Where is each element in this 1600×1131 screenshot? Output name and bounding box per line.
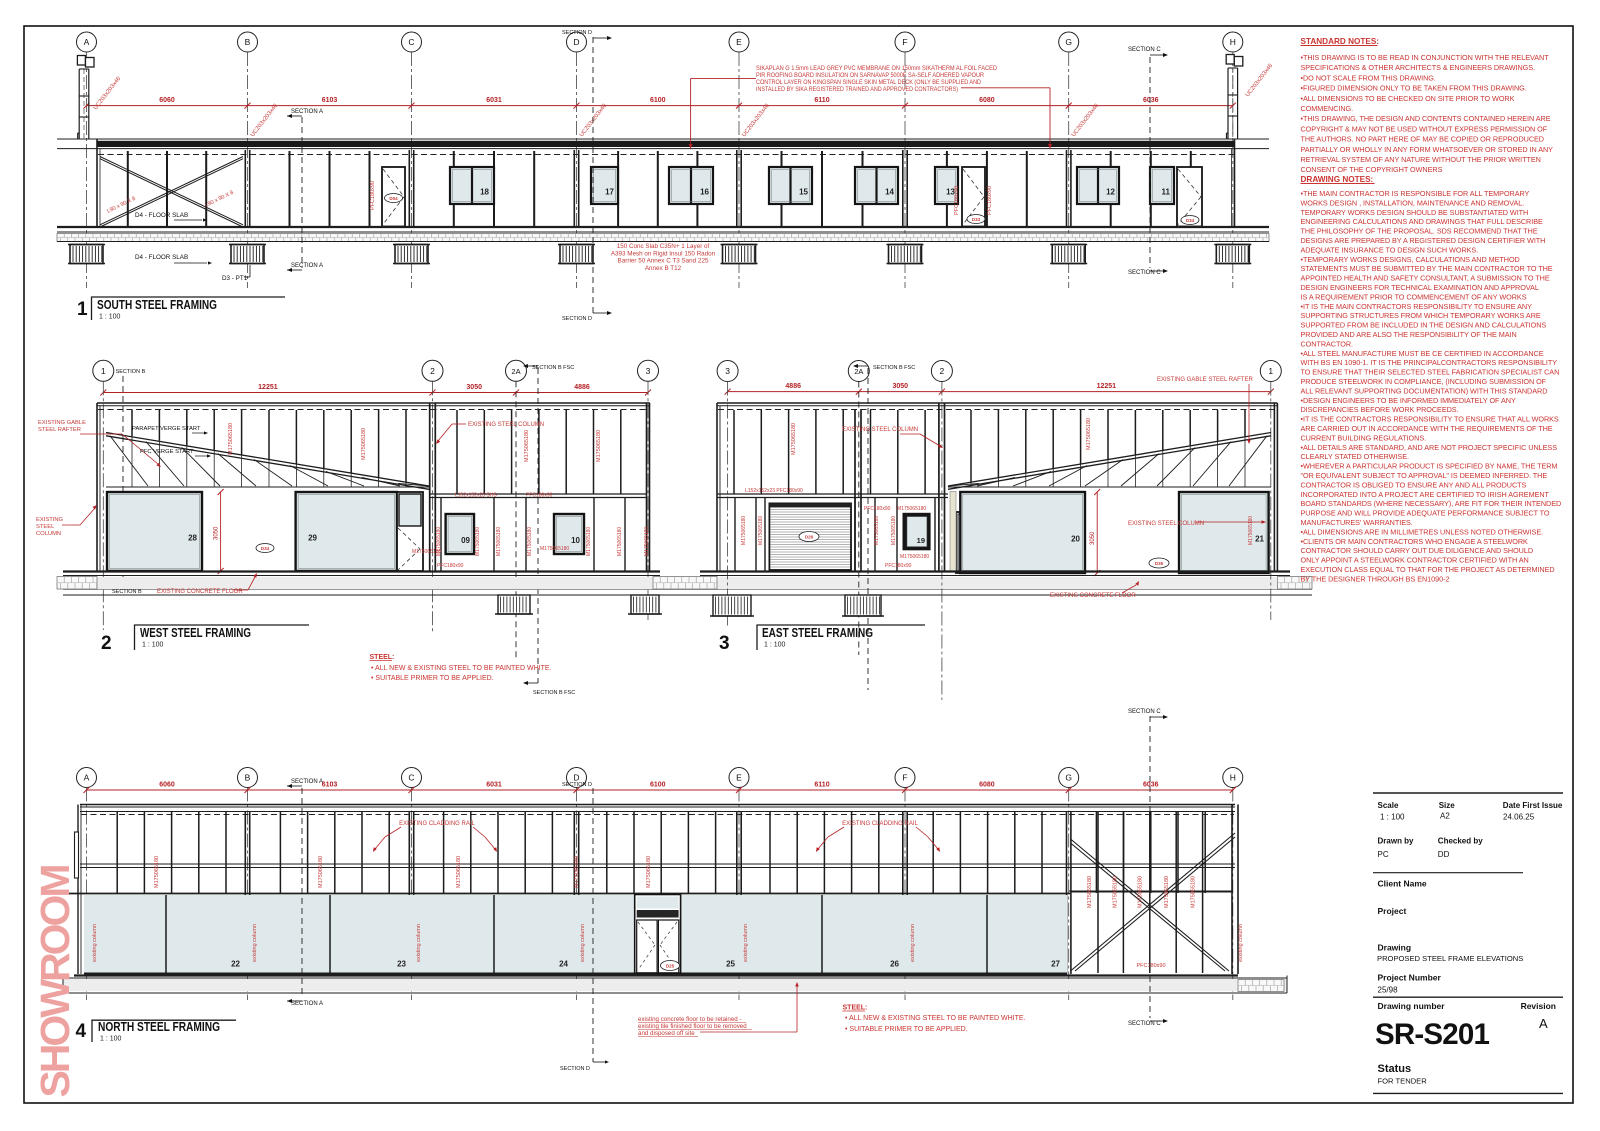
svg-text:M175065180: M175065180 bbox=[1164, 876, 1170, 908]
svg-text:PFC VERGE START: PFC VERGE START bbox=[140, 449, 194, 455]
svg-text:EXISTING STEEL COLUMN: EXISTING STEEL COLUMN bbox=[468, 422, 544, 428]
svg-text:A2: A2 bbox=[1440, 812, 1450, 821]
svg-text:M175065180: M175065180 bbox=[758, 516, 764, 545]
svg-text:SECTION B FSC: SECTION B FSC bbox=[873, 365, 915, 371]
svg-text:6080: 6080 bbox=[979, 782, 995, 789]
svg-text:M175065180: M175065180 bbox=[527, 527, 533, 556]
svg-text:CONTRACTOR IS OBLIGED TO ENSUR: CONTRACTOR IS OBLIGED TO ENSURE ANY AND … bbox=[1301, 480, 1527, 489]
svg-text:Barrier 50 Annex C T3 Sand 225: Barrier 50 Annex C T3 Sand 225 bbox=[618, 258, 709, 265]
svg-text:F: F bbox=[902, 773, 907, 783]
svg-text:existing tile finished floor t: existing tile finished floor to be remov… bbox=[638, 1023, 747, 1030]
svg-text:RETRIEVAL SYSTEM OF ANY NATURE: RETRIEVAL SYSTEM OF ANY NATURE WITHOUT T… bbox=[1301, 155, 1541, 164]
svg-text:H: H bbox=[1230, 37, 1236, 47]
svg-text:DRAWING NOTES:: DRAWING NOTES: bbox=[1301, 175, 1374, 184]
svg-text:CONTROL LAYER ON KINGSPAN SING: CONTROL LAYER ON KINGSPAN SINGLE SKIN ME… bbox=[756, 79, 981, 86]
svg-text:1: 1 bbox=[77, 299, 88, 320]
svg-text:14: 14 bbox=[885, 188, 894, 197]
svg-text:12: 12 bbox=[1106, 188, 1115, 197]
svg-text:M175065180: M175065180 bbox=[475, 527, 481, 556]
svg-text:•DO NOT SCALE FROM THIS DRAWIN: •DO NOT SCALE FROM THIS DRAWING. bbox=[1301, 73, 1436, 82]
svg-text:INCORPORATED INTO A PROJECT AR: INCORPORATED INTO A PROJECT ARE CERTIFIE… bbox=[1301, 490, 1550, 499]
svg-text:SECTION D: SECTION D bbox=[562, 782, 592, 788]
svg-text:M175065180: M175065180 bbox=[1191, 876, 1197, 908]
svg-text:23: 23 bbox=[397, 960, 406, 969]
svg-text:6103: 6103 bbox=[322, 782, 338, 789]
svg-text:existing concrete floor to be: existing concrete floor to be retained - bbox=[638, 1016, 742, 1023]
svg-text:2: 2 bbox=[101, 633, 112, 654]
svg-text:M175065180: M175065180 bbox=[644, 527, 650, 556]
svg-text:Drawn by: Drawn by bbox=[1378, 837, 1415, 846]
svg-text:SPECIFICATIONS & OTHER ARCHITE: SPECIFICATIONS & OTHER ARCHITECTS & ENGI… bbox=[1301, 63, 1536, 72]
svg-text:150 Conc Slab C35N+ 1 Layer of: 150 Conc Slab C35N+ 1 Layer of bbox=[617, 243, 710, 250]
svg-text:SECTION D: SECTION D bbox=[560, 1066, 590, 1072]
svg-text:M175065180: M175065180 bbox=[456, 856, 462, 888]
svg-text:DESIGNS ARE PREPARED BY A REG: DESIGNS ARE PREPARED BY A REGISTERED DES… bbox=[1301, 236, 1546, 245]
svg-text:M175065180: M175065180 bbox=[791, 423, 797, 455]
svg-text:SECTION C: SECTION C bbox=[1128, 1021, 1161, 1027]
svg-text:6036: 6036 bbox=[1143, 782, 1159, 789]
svg-text:D: D bbox=[573, 37, 579, 47]
svg-text:C: C bbox=[408, 773, 414, 783]
svg-text:3050: 3050 bbox=[466, 384, 482, 391]
svg-text:24.06.25: 24.06.25 bbox=[1503, 813, 1535, 822]
svg-text:17: 17 bbox=[605, 188, 614, 197]
svg-text:existing column: existing column bbox=[580, 924, 586, 962]
svg-text:DD: DD bbox=[1438, 850, 1450, 859]
svg-text:A: A bbox=[84, 773, 90, 783]
svg-text:•ALL DIMENSIONS ARE IN MILLIME: •ALL DIMENSIONS ARE IN MILLIMETRES UNLES… bbox=[1301, 527, 1544, 536]
svg-text:E: E bbox=[736, 37, 742, 47]
svg-text:THE AUTHORS. NO PART HERE OF: THE AUTHORS. NO PART HERE OF MAY BE COPI… bbox=[1301, 135, 1544, 144]
svg-text:existing column: existing column bbox=[743, 924, 749, 962]
svg-text:STEEL: STEEL bbox=[36, 524, 55, 530]
svg-text:D: D bbox=[573, 773, 579, 783]
svg-text:SR-S201: SR-S201 bbox=[1375, 1018, 1489, 1051]
svg-text:M175065180: M175065180 bbox=[617, 527, 623, 556]
svg-text:D04: D04 bbox=[389, 196, 398, 201]
svg-text:ONLY APPOINT A STEELWORK CONTR: ONLY APPOINT A STEELWORK CONTRACTOR CERT… bbox=[1301, 556, 1529, 565]
svg-text:M175065180: M175065180 bbox=[1138, 876, 1144, 908]
svg-text:•IT IS THE MAIN CONTRACTORS RE: •IT IS THE MAIN CONTRACTORS RESPONSIBILI… bbox=[1301, 302, 1533, 311]
svg-text:EXECUTION CLASS EQUAL TO THAT: EXECUTION CLASS EQUAL TO THAT FOR THE PR… bbox=[1301, 565, 1555, 574]
svg-text:M175065180: M175065180 bbox=[596, 430, 602, 462]
svg-text:PFC180x90: PFC180x90 bbox=[987, 186, 993, 215]
svg-text:Date First Issue: Date First Issue bbox=[1503, 801, 1563, 810]
svg-text:•ALL DIMENSIONS TO BE CHECKED: •ALL DIMENSIONS TO BE CHECKED ON SITE PR… bbox=[1301, 94, 1515, 103]
svg-text:Revision: Revision bbox=[1521, 1001, 1556, 1011]
svg-text:•ALL STEEL MANUFACTURE MUST BE: •ALL STEEL MANUFACTURE MUST BE CE CERTIF… bbox=[1301, 349, 1544, 358]
svg-text:6036: 6036 bbox=[1143, 97, 1159, 104]
svg-text:21: 21 bbox=[1255, 535, 1264, 544]
svg-text:EXISTING STEEL COLUMN: EXISTING STEEL COLUMN bbox=[842, 427, 918, 433]
svg-text:TO ENSURE THAT THEIR SELECTED: TO ENSURE THAT THEIR SELECTED STEEL FABR… bbox=[1301, 368, 1560, 377]
svg-text:ENGINEERING CALCULATIONS AND: ENGINEERING CALCULATIONS AND DRAWINGS TH… bbox=[1301, 217, 1543, 226]
svg-text:CONTRACTOR.: CONTRACTOR. bbox=[1301, 339, 1354, 348]
svg-text:NORTH STEEL FRAMING: NORTH STEEL FRAMING bbox=[98, 1020, 220, 1034]
svg-text:M175065180: M175065180 bbox=[1086, 418, 1092, 450]
svg-text:WEST STEEL FRAMING: WEST STEEL FRAMING bbox=[140, 626, 251, 640]
svg-text:"OR EQUIVALENT SUBJECT TO APPR: "OR EQUIVALENT SUBJECT TO APPROVAL" IS D… bbox=[1301, 471, 1548, 480]
svg-text:•FIGURED DIMENSION ONLY TO BE: •FIGURED DIMENSION ONLY TO BE TAKEN FROM… bbox=[1301, 84, 1527, 93]
svg-text:4886: 4886 bbox=[574, 384, 590, 391]
svg-text:L152x152x23 PFC180x90: L152x152x23 PFC180x90 bbox=[745, 488, 803, 494]
svg-text:M175065180: M175065180 bbox=[891, 516, 897, 545]
svg-text:CONSENT OF THE COPYRIGHT OWNER: CONSENT OF THE COPYRIGHT OWNERS bbox=[1301, 165, 1443, 174]
svg-text:PFC180x90: PFC180x90 bbox=[526, 492, 553, 498]
svg-text:SECTION A: SECTION A bbox=[291, 779, 323, 785]
svg-text:M175065180: M175065180 bbox=[574, 856, 580, 888]
svg-text:STANDARD NOTES:: STANDARD NOTES: bbox=[1301, 37, 1380, 46]
svg-text:Project: Project bbox=[1378, 906, 1407, 916]
svg-text:EXISTING: EXISTING bbox=[36, 517, 64, 523]
svg-text:M175065180: M175065180 bbox=[900, 554, 929, 560]
svg-text:SECTION A: SECTION A bbox=[291, 1001, 323, 1007]
svg-text:6100: 6100 bbox=[650, 782, 666, 789]
svg-text:24: 24 bbox=[559, 960, 568, 969]
svg-text:EXISTING STEEL COLUMN: EXISTING STEEL COLUMN bbox=[1128, 521, 1204, 527]
svg-text:• SUITABLE PRIMER TO BE APPLI: • SUITABLE PRIMER TO BE APPLIED. bbox=[845, 1026, 968, 1033]
svg-text:WORKS DESIGN , INSTALLATION, M: WORKS DESIGN , INSTALLATION, MAINTENANCE… bbox=[1301, 198, 1525, 207]
svg-text:1 : 100: 1 : 100 bbox=[100, 1036, 122, 1043]
svg-text:6103: 6103 bbox=[322, 97, 338, 104]
svg-text:MANUFACTURES' WARRANTIES.: MANUFACTURES' WARRANTIES. bbox=[1301, 518, 1413, 527]
svg-text:D34: D34 bbox=[1186, 218, 1195, 223]
svg-text:SHOWROOM: SHOWROOM bbox=[32, 866, 78, 1098]
svg-text:D3 - PT1: D3 - PT1 bbox=[222, 275, 248, 282]
svg-text:APPOINTED HEALTH AND SAFETY CO: APPOINTED HEALTH AND SAFETY CONSULTANT, … bbox=[1301, 274, 1550, 283]
svg-text:25: 25 bbox=[726, 960, 735, 969]
svg-text:DISCREPANCIES BEFORE WORK PROC: DISCREPANCIES BEFORE WORK PROCEEDS. bbox=[1301, 405, 1459, 414]
svg-text:CONTRACTOR SHOULD CARRY OUT DU: CONTRACTOR SHOULD CARRY OUT DUE DILIGENC… bbox=[1301, 546, 1534, 555]
svg-text:D34: D34 bbox=[261, 546, 270, 551]
svg-text:SECTION B: SECTION B bbox=[116, 369, 146, 375]
svg-text:existing column: existing column bbox=[92, 924, 98, 962]
svg-text:INSTALLED BY SIKA REGISTERED T: INSTALLED BY SIKA REGISTERED TRAINED AND… bbox=[756, 86, 958, 93]
svg-text:6031: 6031 bbox=[486, 97, 502, 104]
svg-text:SIKAPLAN G 1.5mm LEAD GREY PVC: SIKAPLAN G 1.5mm LEAD GREY PVC MEMBRANE … bbox=[756, 65, 997, 72]
svg-text:2A: 2A bbox=[511, 367, 520, 376]
svg-text:Drawing number: Drawing number bbox=[1378, 1001, 1446, 1011]
svg-text:10: 10 bbox=[571, 536, 580, 545]
svg-text:SUPPORTING STRUCTURES FROM WHI: SUPPORTING STRUCTURES FROM WHICH TEMPORA… bbox=[1301, 311, 1541, 320]
svg-text:A: A bbox=[1539, 1016, 1548, 1031]
svg-text:2: 2 bbox=[430, 366, 435, 376]
svg-text:BOARD STANDARDS (WHERE NECESSA: BOARD STANDARDS (WHERE NECESSARY), ARE F… bbox=[1301, 499, 1562, 508]
svg-text:• ALL NEW & EXISTING STEEL T: • ALL NEW & EXISTING STEEL TO BE PAINTED… bbox=[845, 1015, 1026, 1022]
svg-text:M175065180: M175065180 bbox=[741, 516, 747, 545]
svg-text:STATEMENTS MUST BE SUBMITTED B: STATEMENTS MUST BE SUBMITTED BY THE MAIN… bbox=[1301, 264, 1553, 273]
svg-text:PRODUCE STEELWORK IN COMPLIANC: PRODUCE STEELWORK IN COMPLIANCE, (INCLUD… bbox=[1301, 377, 1547, 386]
svg-text:1 : 100: 1 : 100 bbox=[142, 642, 164, 649]
svg-text:A: A bbox=[84, 37, 90, 47]
svg-text:SECTION B FSC: SECTION B FSC bbox=[533, 690, 575, 696]
svg-text:THE PHILOSOPHY OF THE PROPOSAL: THE PHILOSOPHY OF THE PROPOSAL. SDS RECO… bbox=[1301, 227, 1538, 236]
svg-text:6100: 6100 bbox=[650, 97, 666, 104]
svg-text:PFC180x90: PFC180x90 bbox=[370, 181, 376, 210]
svg-text:Drawing: Drawing bbox=[1378, 943, 1412, 953]
svg-text:COLUMN: COLUMN bbox=[36, 531, 61, 537]
svg-text:BY THE DESIGNER THROUGH BS EN1: BY THE DESIGNER THROUGH BS EN1090-2 bbox=[1301, 574, 1450, 583]
svg-text:EXISTING CONCRETE FLOOR: EXISTING CONCRETE FLOOR bbox=[157, 589, 243, 595]
svg-text:6031: 6031 bbox=[486, 782, 502, 789]
svg-text:M175065180: M175065180 bbox=[318, 856, 324, 888]
svg-text:EXISTING CONCRETE FLOOR: EXISTING CONCRETE FLOOR bbox=[1050, 593, 1136, 599]
svg-text:Status: Status bbox=[1378, 1063, 1412, 1075]
svg-text:6060: 6060 bbox=[159, 782, 175, 789]
svg-text:M175065180: M175065180 bbox=[361, 428, 367, 460]
svg-text:D4 - FLOOR SLAB: D4 - FLOOR SLAB bbox=[135, 254, 188, 261]
svg-text:DESIGN ENGINEERS FOR TECHNIC: DESIGN ENGINEERS FOR TECHNICAL EXAMINATI… bbox=[1301, 283, 1539, 292]
svg-text:29: 29 bbox=[308, 534, 317, 543]
svg-text:SECTION B: SECTION B bbox=[112, 589, 142, 595]
svg-text:PC: PC bbox=[1378, 850, 1389, 859]
svg-text:2A: 2A bbox=[854, 367, 863, 376]
svg-text:PFC180x90: PFC180x90 bbox=[1136, 963, 1165, 969]
svg-text:•DESIGN ENGINEERS TO BE INFORM: •DESIGN ENGINEERS TO BE INFORMED IMMEDIA… bbox=[1301, 396, 1516, 405]
svg-text:F: F bbox=[902, 37, 907, 47]
svg-text:•ALL DETAILS ARE STANDARD, AND: •ALL DETAILS ARE STANDARD, AND ARE NOT P… bbox=[1301, 443, 1558, 452]
svg-text:2: 2 bbox=[940, 366, 945, 376]
svg-text:•CLIENTS OR MAIN CONTRACTORS W: •CLIENTS OR MAIN CONTRACTORS WHO ENGAGE … bbox=[1301, 537, 1529, 546]
svg-text:Checked by: Checked by bbox=[1438, 837, 1483, 846]
svg-text:M175065180: M175065180 bbox=[412, 549, 441, 555]
svg-text:COMMENCING.: COMMENCING. bbox=[1301, 104, 1354, 113]
svg-text:•THIS DRAWING, THE DESIGN AND: •THIS DRAWING, THE DESIGN AND CONTENTS C… bbox=[1301, 114, 1551, 123]
svg-text:SECTION C: SECTION C bbox=[1128, 47, 1161, 53]
svg-text:STEEL RAFTER: STEEL RAFTER bbox=[38, 427, 81, 433]
svg-text:E: E bbox=[736, 773, 742, 783]
svg-text:G: G bbox=[1065, 773, 1072, 783]
svg-text:EXISTING GABLE STEEL RAFTER: EXISTING GABLE STEEL RAFTER bbox=[1157, 377, 1253, 383]
svg-text:L152x152x23 SHS: L152x152x23 SHS bbox=[455, 492, 497, 498]
svg-text:D33: D33 bbox=[972, 217, 981, 222]
svg-text:25/98: 25/98 bbox=[1378, 986, 1399, 995]
svg-text:19: 19 bbox=[917, 536, 925, 545]
svg-text:•WHEREVER A PARTICULAR PRODUCT: •WHEREVER A PARTICULAR PRODUCT IS SPECIF… bbox=[1301, 462, 1558, 471]
svg-text:• SUITABLE PRIMER TO BE APPLI: • SUITABLE PRIMER TO BE APPLIED. bbox=[371, 675, 494, 682]
svg-text:D25: D25 bbox=[666, 964, 675, 969]
svg-text:existing column: existing column bbox=[252, 924, 258, 962]
svg-text:ARE CARRIED OUT IN ACCORDANCE: ARE CARRIED OUT IN ACCORDANCE WITH THE R… bbox=[1301, 424, 1553, 433]
svg-text:28: 28 bbox=[188, 534, 197, 543]
svg-text:3: 3 bbox=[719, 633, 730, 654]
svg-text:IS A REQUIREMENT PRIOR TO COMM: IS A REQUIREMENT PRIOR TO COMMENCEMENT O… bbox=[1301, 292, 1527, 301]
svg-text:12251: 12251 bbox=[1097, 383, 1117, 390]
svg-text:existing column: existing column bbox=[910, 924, 916, 962]
svg-text:M175065180: M175065180 bbox=[496, 527, 502, 556]
svg-text:SECTION A: SECTION A bbox=[291, 263, 323, 269]
svg-text:M175065180: M175065180 bbox=[1112, 876, 1118, 908]
svg-text:COPYRIGHT & MAY NOT BE USED WI: COPYRIGHT & MAY NOT BE USED WITHOUT EXPR… bbox=[1301, 124, 1548, 133]
svg-text:EXISTING CLADDING RAIL: EXISTING CLADDING RAIL bbox=[399, 821, 475, 827]
svg-text:PFC180x90: PFC180x90 bbox=[864, 506, 891, 512]
svg-text:ALL RELEVANT SUPPORTING DOCUME: ALL RELEVANT SUPPORTING DOCUMENTATION) W… bbox=[1301, 386, 1548, 395]
svg-text:PFC180x90: PFC180x90 bbox=[885, 563, 912, 569]
svg-text:M175065180: M175065180 bbox=[874, 516, 880, 545]
svg-text:FOR TENDER: FOR TENDER bbox=[1378, 1077, 1428, 1086]
svg-text:3050: 3050 bbox=[893, 383, 909, 390]
svg-text:•IT IS THE CONTRACTORS RESPONS: •IT IS THE CONTRACTORS RESPONSIBILITY TO… bbox=[1301, 415, 1559, 424]
svg-text:M175065180: M175065180 bbox=[1248, 516, 1254, 545]
svg-text:12251: 12251 bbox=[258, 384, 278, 391]
svg-text:PURPOSE AND WILL PROVIDE ADEQU: PURPOSE AND WILL PROVIDE ADEQUATE PERFOR… bbox=[1301, 509, 1550, 518]
svg-text:M175065180: M175065180 bbox=[897, 506, 926, 512]
svg-text:WITH BS EN 1090-1. IT IS THE: WITH BS EN 1090-1. IT IS THE PRINCIPALCO… bbox=[1301, 358, 1558, 367]
svg-text:SECTION C: SECTION C bbox=[1128, 709, 1161, 715]
svg-text:3: 3 bbox=[646, 366, 651, 376]
svg-text:B: B bbox=[245, 37, 251, 47]
svg-text:15: 15 bbox=[799, 188, 808, 197]
svg-text:3: 3 bbox=[725, 366, 730, 376]
svg-text:STEEL:: STEEL: bbox=[843, 1005, 868, 1012]
svg-text:PARAPET VERGE START: PARAPET VERGE START bbox=[132, 426, 201, 432]
svg-text:M175065180: M175065180 bbox=[154, 856, 160, 888]
svg-text:H: H bbox=[1230, 773, 1236, 783]
svg-text:existing column: existing column bbox=[416, 924, 422, 962]
svg-text:SOUTH STEEL FRAMING: SOUTH STEEL FRAMING bbox=[97, 298, 217, 312]
svg-text:6110: 6110 bbox=[814, 782, 829, 789]
svg-text:27: 27 bbox=[1051, 960, 1060, 969]
svg-text:16: 16 bbox=[700, 188, 709, 197]
svg-text:SECTION D: SECTION D bbox=[562, 316, 592, 322]
svg-text:Project Number: Project Number bbox=[1378, 973, 1442, 983]
svg-text:B: B bbox=[245, 773, 251, 783]
svg-text:M175065180: M175065180 bbox=[524, 430, 530, 462]
svg-text:6080: 6080 bbox=[979, 97, 995, 104]
svg-text:6060: 6060 bbox=[159, 97, 175, 104]
svg-text:M175065180: M175065180 bbox=[228, 423, 234, 455]
svg-text:SECTION B FSC: SECTION B FSC bbox=[532, 365, 574, 371]
svg-text:20: 20 bbox=[1071, 535, 1080, 544]
svg-text:1 : 100: 1 : 100 bbox=[764, 642, 786, 649]
svg-text:Annex B T12: Annex B T12 bbox=[645, 265, 682, 272]
svg-text:M175065180: M175065180 bbox=[646, 856, 652, 888]
svg-text:D26: D26 bbox=[805, 535, 814, 540]
svg-text:22: 22 bbox=[231, 960, 240, 969]
svg-text:11: 11 bbox=[1162, 188, 1171, 197]
svg-text:1: 1 bbox=[101, 366, 106, 376]
svg-text:ADEQUATE INSURANCE TO DESIGN: ADEQUATE INSURANCE TO DESIGN SUCH WORKS. bbox=[1301, 245, 1479, 254]
svg-text:•THIS DRAWING IS TO BE READ IN: •THIS DRAWING IS TO BE READ IN CONJUNCTI… bbox=[1301, 53, 1550, 62]
svg-text:1: 1 bbox=[1268, 366, 1273, 376]
svg-text:STEEL:: STEEL: bbox=[370, 654, 395, 661]
svg-text:SECTION D: SECTION D bbox=[562, 30, 592, 36]
svg-text:and disposed off site: and disposed off site bbox=[638, 1030, 695, 1037]
svg-text:G: G bbox=[1065, 37, 1072, 47]
svg-text:M175065180: M175065180 bbox=[1087, 876, 1093, 908]
svg-text:1 : 100: 1 : 100 bbox=[99, 314, 121, 321]
svg-text:M175065180: M175065180 bbox=[540, 546, 569, 552]
svg-text:3050: 3050 bbox=[214, 526, 220, 540]
svg-text:• ALL NEW & EXISTING STEEL T: • ALL NEW & EXISTING STEEL TO BE PAINTED… bbox=[371, 665, 552, 672]
svg-text:EXISTING CLADDING RAIL: EXISTING CLADDING RAIL bbox=[842, 821, 918, 827]
svg-text:PROVIDED AND ARE ALSO THE RES: PROVIDED AND ARE ALSO THE RESPONSIBILITY… bbox=[1301, 330, 1517, 339]
svg-text:Scale: Scale bbox=[1378, 801, 1399, 810]
svg-text:SECTION A: SECTION A bbox=[291, 109, 323, 115]
svg-text:PROPOSED STEEL FRAME ELEVATION: PROPOSED STEEL FRAME ELEVATIONS bbox=[1377, 954, 1523, 963]
svg-text:PFC180x90: PFC180x90 bbox=[954, 186, 960, 215]
svg-text:A393 Mesh on Rigid Insul 150: A393 Mesh on Rigid Insul 150 Radon bbox=[611, 250, 716, 257]
svg-text:PFC180x90: PFC180x90 bbox=[437, 563, 464, 569]
svg-text:4886: 4886 bbox=[785, 383, 801, 390]
svg-text:Client Name: Client Name bbox=[1378, 879, 1427, 889]
svg-text:PIR ROOFING BOARD INSULATION O: PIR ROOFING BOARD INSULATION ON SARNAVAP… bbox=[756, 72, 984, 79]
svg-text:EAST STEEL FRAMING: EAST STEEL FRAMING bbox=[762, 626, 873, 640]
svg-text:1 : 100: 1 : 100 bbox=[1380, 813, 1405, 822]
svg-text:•THE MAIN CONTRACTOR IS RESPON: •THE MAIN CONTRACTOR IS RESPONSIBLE FOR … bbox=[1301, 189, 1530, 198]
svg-text:Size: Size bbox=[1439, 801, 1456, 810]
svg-text:existing column: existing column bbox=[1238, 924, 1244, 962]
svg-text:D35: D35 bbox=[1155, 561, 1164, 566]
svg-text:3050: 3050 bbox=[1090, 531, 1096, 545]
svg-text:C: C bbox=[408, 37, 414, 47]
svg-text:18: 18 bbox=[480, 188, 489, 197]
svg-text:D4 - FLOOR SLAB: D4 - FLOOR SLAB bbox=[135, 212, 188, 219]
svg-text:26: 26 bbox=[890, 960, 899, 969]
svg-text:PARTIALLY OR WHOLLY IN ANY FOR: PARTIALLY OR WHOLLY IN ANY FORM WHATSOEV… bbox=[1301, 145, 1554, 154]
svg-text:CURRENT BUILDING REGULATIONS.: CURRENT BUILDING REGULATIONS. bbox=[1301, 433, 1427, 442]
svg-text:EXISTING GABLE: EXISTING GABLE bbox=[38, 420, 86, 426]
svg-text:•TEMPORARY WORKS DESIGNS, CALC: •TEMPORARY WORKS DESIGNS, CALCULATIONS A… bbox=[1301, 255, 1520, 264]
svg-text:CLEARLY STATED OTHERWISE.: CLEARLY STATED OTHERWISE. bbox=[1301, 452, 1409, 461]
svg-text:SUPPORTED FROM BE INCLUDED IN: SUPPORTED FROM BE INCLUDED IN THE DESIGN… bbox=[1301, 321, 1547, 330]
svg-text:6110: 6110 bbox=[814, 97, 829, 104]
svg-text:09: 09 bbox=[461, 536, 470, 545]
svg-text:TEMPORARY WORKS DESIGN SHOULD: TEMPORARY WORKS DESIGN SHOULD BE SUBSTAN… bbox=[1301, 208, 1529, 217]
svg-text:M175065180: M175065180 bbox=[586, 527, 592, 556]
